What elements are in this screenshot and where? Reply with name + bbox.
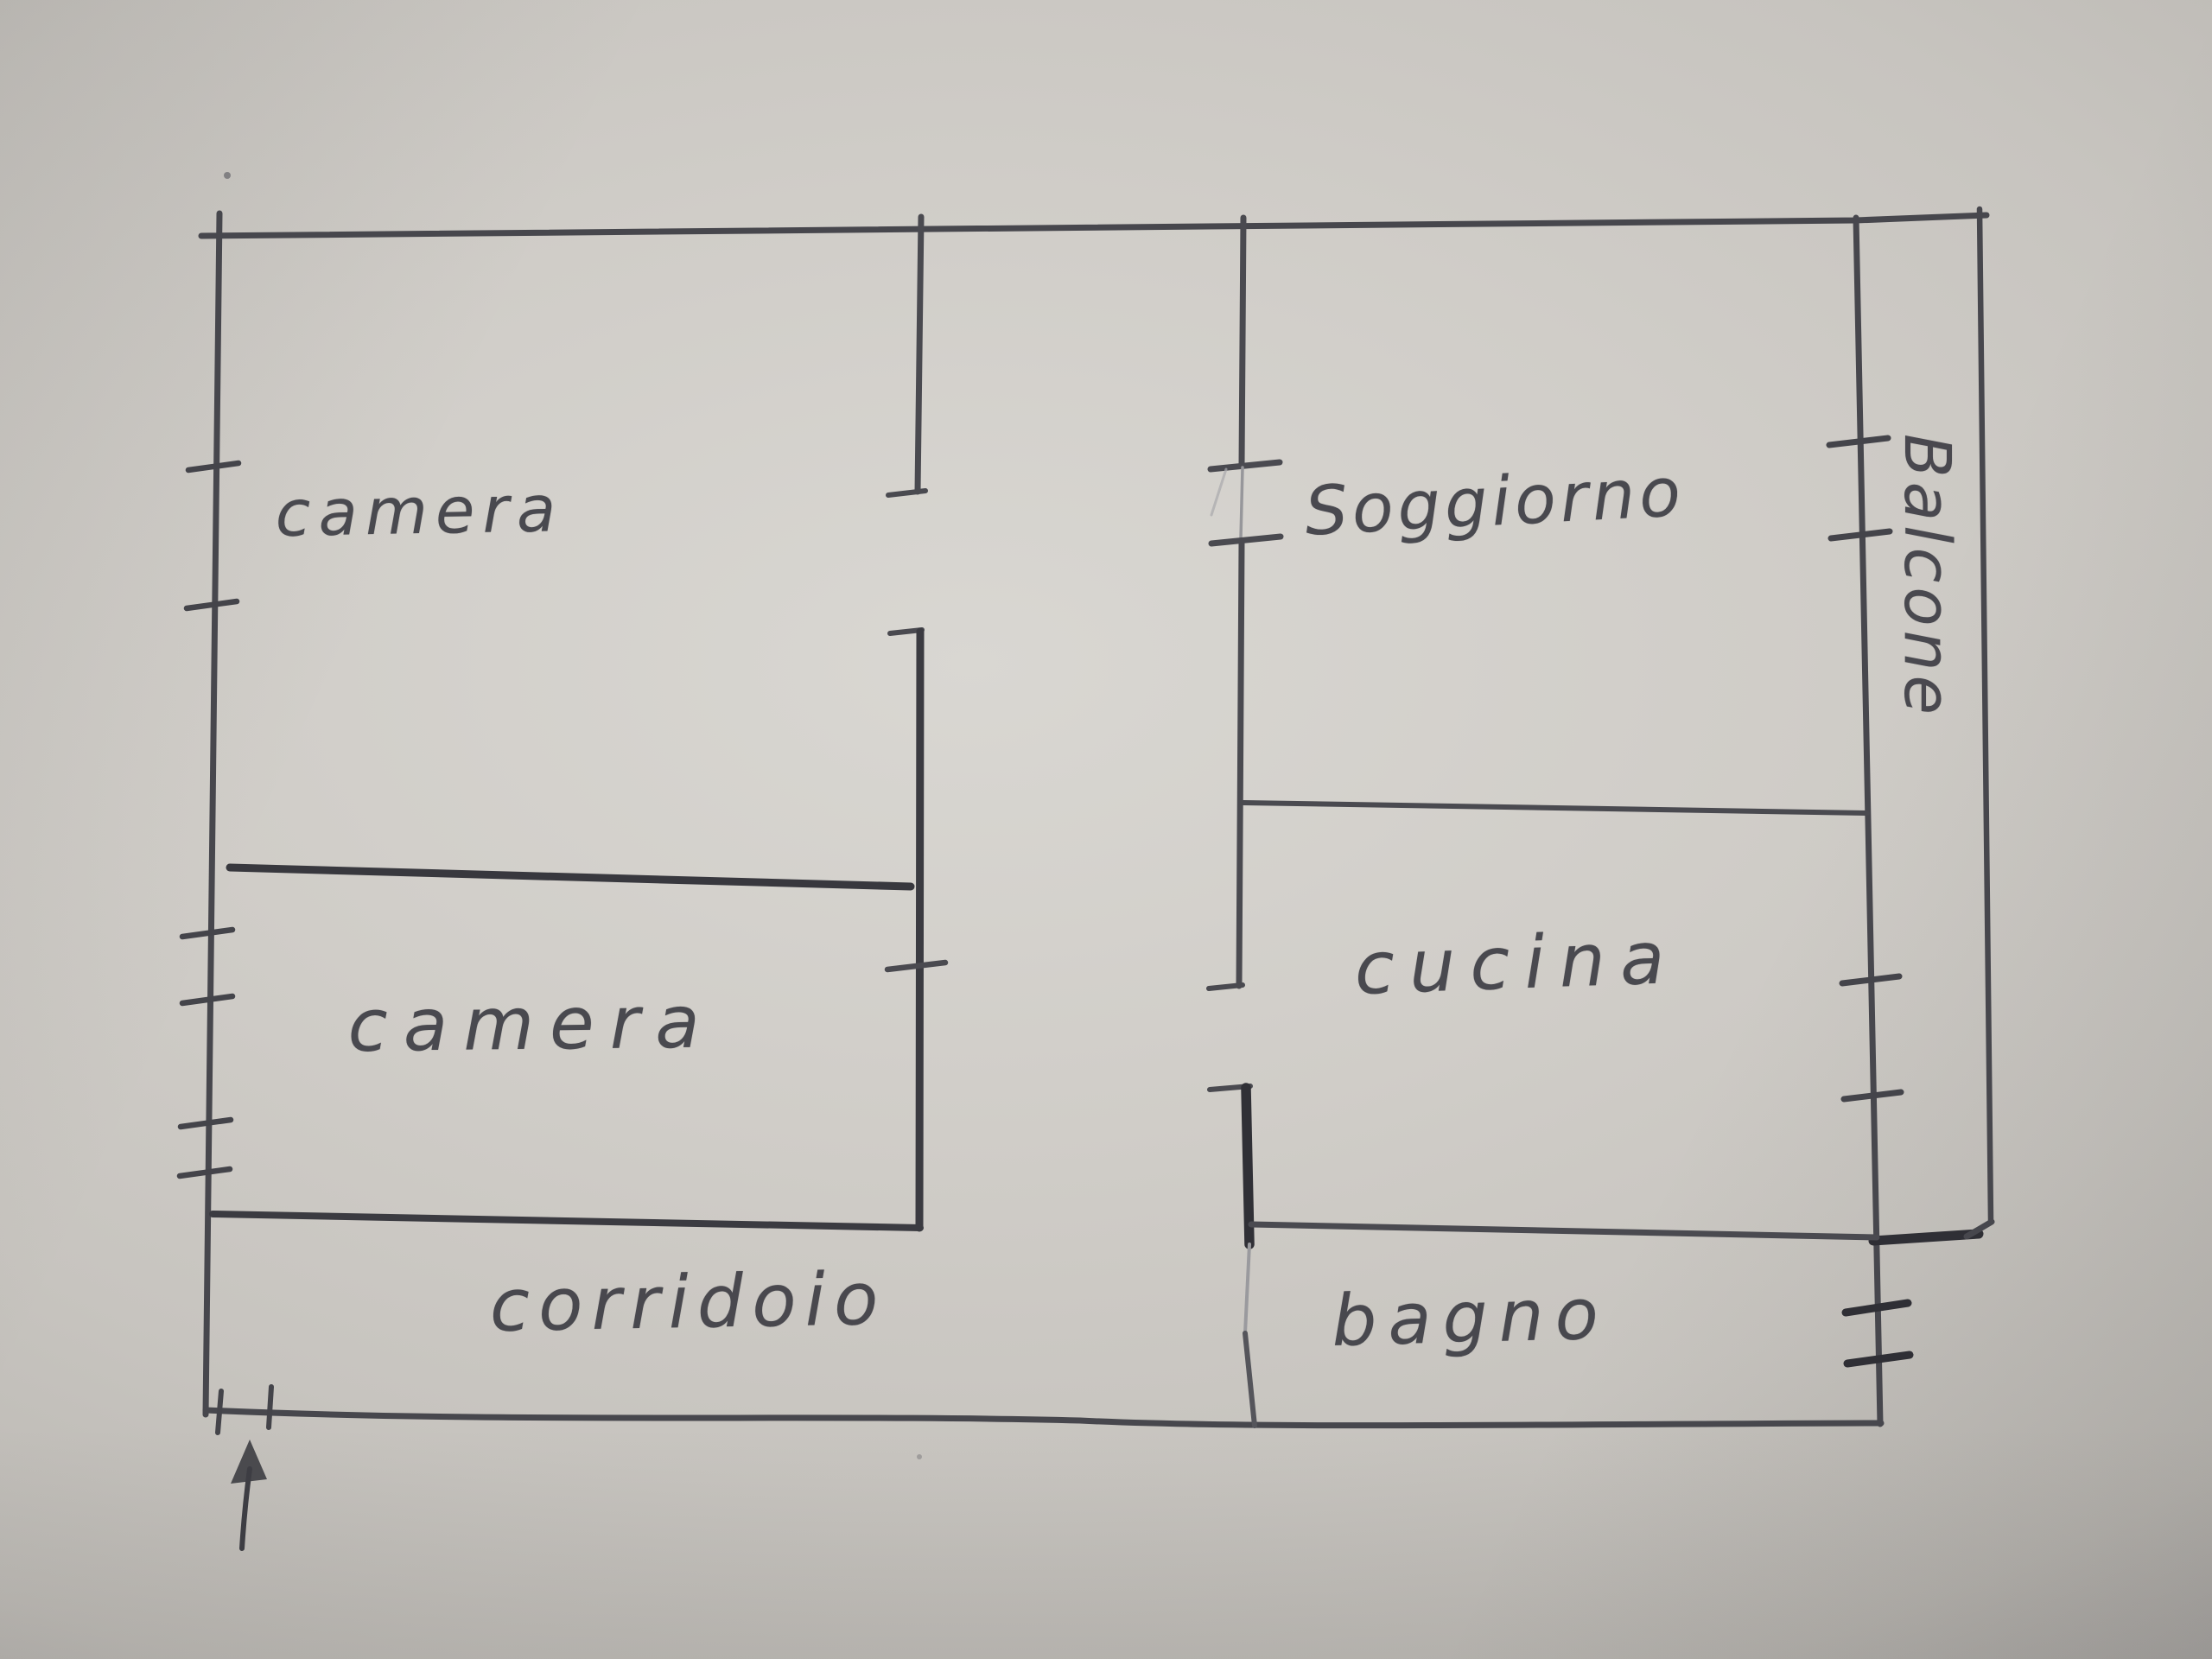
entrance-door-jamb [269,1387,271,1427]
wall-tick [1847,1355,1910,1363]
central-wall-faint [1245,1244,1249,1333]
wall-top [201,215,1986,236]
room-label-balcone: Balcone [1886,395,1964,758]
central-wall-upper [1242,218,1243,465]
internal-walls-left [213,217,945,1228]
room-label-corridoio: corridoio [489,1256,887,1348]
wall-tick [887,963,945,969]
internal-walls-right [1243,803,1877,1237]
floor-plan-photo: camera camera Soggiorno cucina bagno cor… [0,0,2212,1659]
wall-tick [1831,531,1890,538]
balcony-bottom-edge [1873,1234,1979,1241]
wall-tick [1846,1303,1908,1313]
wall-tick [1844,1092,1901,1099]
wall-bagno-top [1251,1224,1877,1237]
wall-camera1-right-upper [918,217,921,492]
wall-tick [187,601,237,608]
door-opening-faint [1241,467,1243,538]
wall-tick [182,930,232,937]
wall-tick [182,996,232,1003]
room-label-bagno: bagno [1331,1274,1611,1363]
entrance-door-jamb [218,1391,221,1433]
wall-tick [188,463,238,470]
room-label-camera-1: camera [275,472,564,551]
wall-tick [181,1120,231,1127]
balcony-outer-wall [1980,209,1991,1221]
room-label-cucina: cucina [1353,915,1681,1011]
central-wall-mid [1239,542,1242,986]
central-wall [1209,218,1281,1426]
wall-tick [1829,438,1888,445]
door-jamb-serif [888,491,925,495]
door-jamb-tick [1211,537,1281,543]
pencil-dot [224,172,231,179]
wall-tick [1842,976,1899,983]
pencil-smudge [1211,469,1226,515]
central-wall-lower [1245,1333,1255,1426]
door-jamb-tick [1211,462,1280,469]
wall-bottom [206,1410,1881,1426]
wall-camera-divider [230,868,911,887]
wall-tick [180,1169,230,1176]
floor-plan-drawing [0,0,2212,1659]
wall-left [206,213,219,1414]
room-label-camera-2: camera [347,980,715,1068]
pencil-dot [917,1454,922,1459]
door-jamb-serif [1209,985,1243,988]
wall-soggiorno-cucina-divider [1243,803,1867,813]
wall-camera2-bottom [213,1214,920,1228]
wall-camera2-right [919,632,920,1228]
outer-walls [201,209,1992,1426]
central-wall-thick [1246,1088,1249,1244]
